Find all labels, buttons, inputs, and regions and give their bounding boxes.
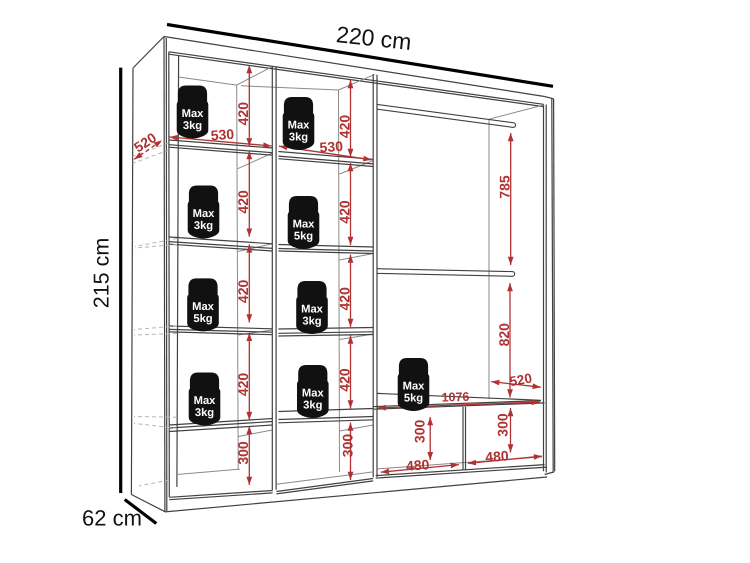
svg-text:3kg: 3kg	[289, 132, 308, 144]
svg-text:300: 300	[412, 420, 428, 444]
svg-text:530: 530	[210, 126, 235, 144]
svg-text:Max: Max	[194, 395, 217, 407]
svg-text:420: 420	[235, 280, 251, 304]
svg-text:5kg: 5kg	[404, 393, 423, 405]
svg-text:Max: Max	[193, 208, 216, 220]
svg-text:Max: Max	[293, 219, 316, 231]
svg-text:215 cm: 215 cm	[90, 238, 114, 309]
svg-text:3kg: 3kg	[194, 220, 213, 232]
svg-text:480: 480	[405, 456, 430, 474]
svg-text:420: 420	[337, 368, 353, 392]
svg-text:300: 300	[495, 413, 511, 437]
svg-text:3kg: 3kg	[183, 120, 202, 132]
svg-text:420: 420	[337, 287, 353, 311]
svg-text:785: 785	[497, 175, 513, 199]
svg-text:5kg: 5kg	[294, 231, 313, 243]
svg-text:3kg: 3kg	[195, 407, 214, 419]
svg-text:420: 420	[337, 115, 353, 139]
svg-text:Max: Max	[182, 108, 205, 120]
svg-text:480: 480	[485, 447, 510, 465]
svg-text:3kg: 3kg	[302, 316, 321, 328]
svg-text:1076: 1076	[441, 390, 469, 405]
svg-text:420: 420	[337, 200, 353, 224]
svg-text:420: 420	[235, 102, 251, 126]
svg-text:5kg: 5kg	[193, 313, 212, 325]
svg-text:530: 530	[319, 138, 344, 156]
svg-text:300: 300	[340, 434, 356, 458]
svg-text:3kg: 3kg	[303, 400, 322, 412]
svg-text:Max: Max	[288, 120, 311, 132]
svg-text:Max: Max	[403, 381, 426, 393]
svg-text:420: 420	[235, 190, 251, 214]
svg-text:Max: Max	[302, 388, 325, 400]
svg-text:Max: Max	[301, 304, 324, 316]
svg-text:420: 420	[235, 373, 251, 397]
svg-text:300: 300	[235, 441, 251, 465]
svg-text:62 cm: 62 cm	[82, 506, 142, 531]
svg-text:820: 820	[496, 323, 512, 347]
svg-text:Max: Max	[192, 301, 215, 313]
